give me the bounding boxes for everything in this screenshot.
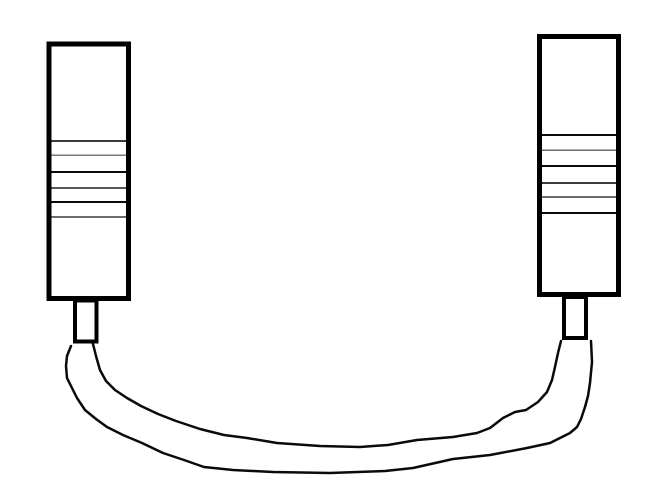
cable-diagram-svg xyxy=(0,0,659,490)
left-connector xyxy=(49,44,129,342)
right-connector xyxy=(540,37,619,339)
left-connector-neck xyxy=(75,301,97,342)
drawing-canvas xyxy=(0,0,659,490)
right-connector-neck xyxy=(564,297,586,338)
